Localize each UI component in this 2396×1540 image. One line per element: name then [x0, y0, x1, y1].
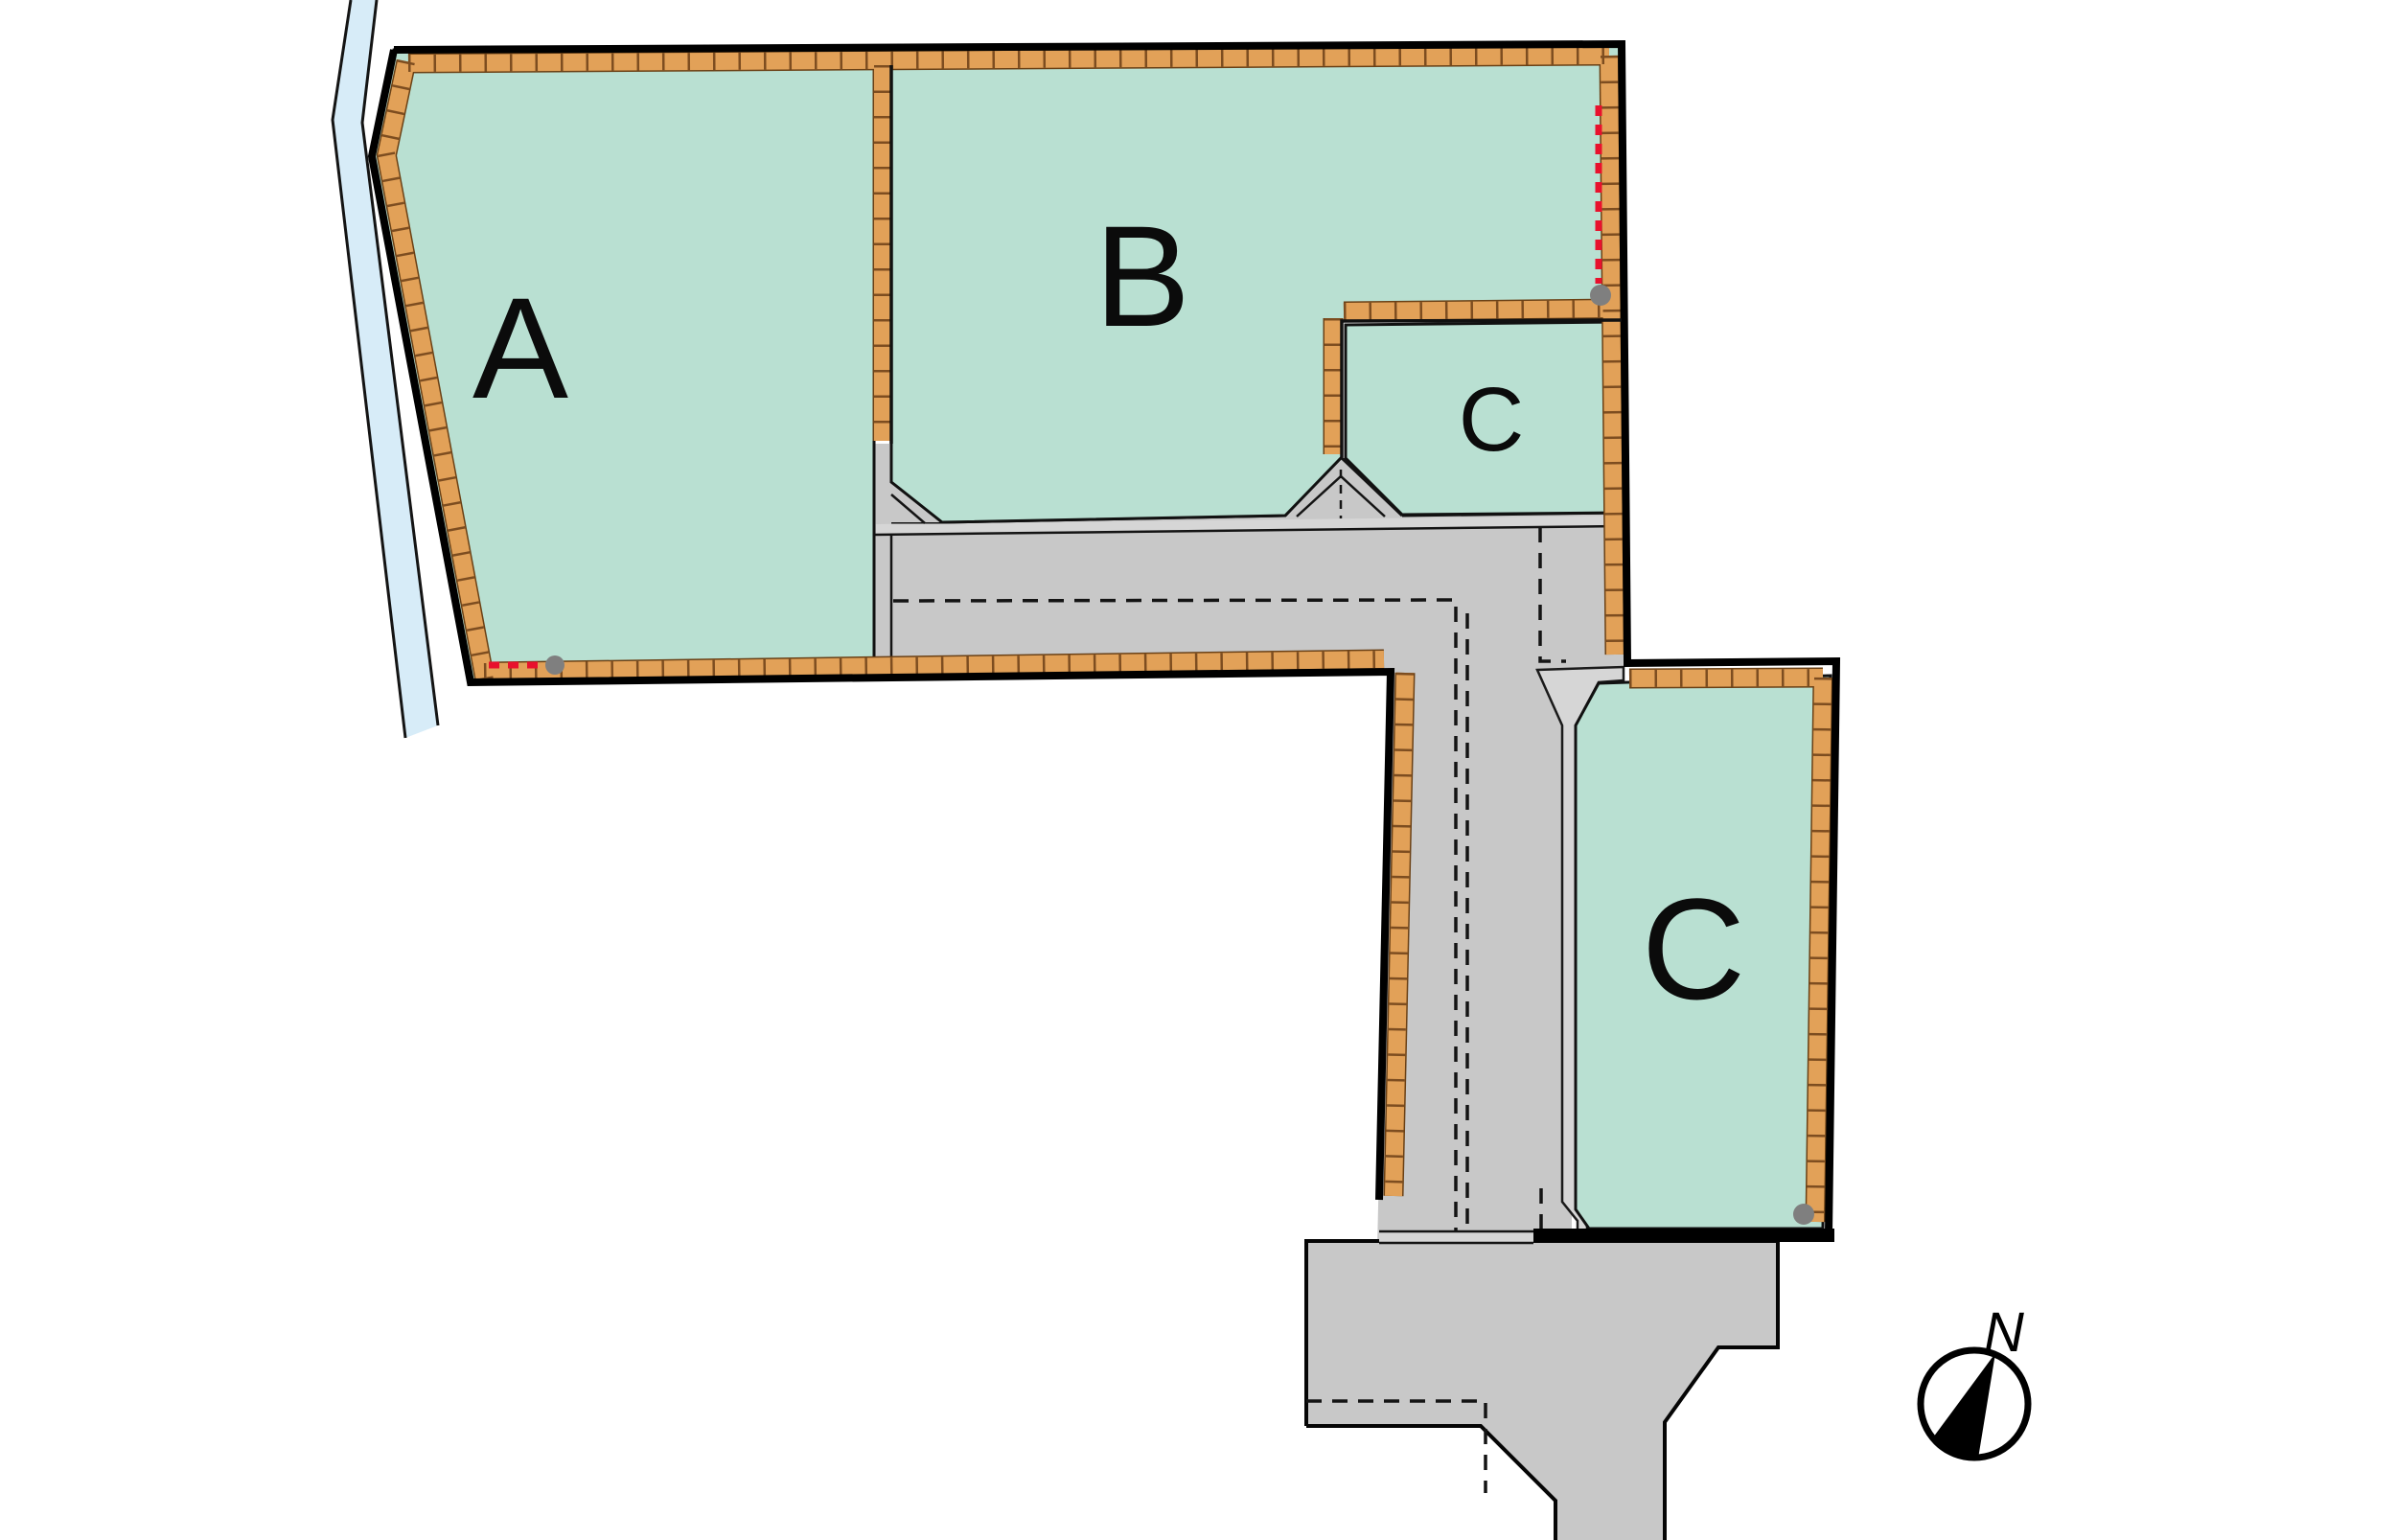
manhole-parcel-b [1590, 285, 1611, 306]
parcel-a [372, 47, 874, 682]
parcel-b-label: B [1094, 195, 1190, 356]
road-centerline-horizontal [893, 600, 1456, 1232]
manhole-parcel-a [545, 655, 564, 675]
parcel-a-label: A [472, 267, 568, 428]
site-plan: A B C C N [0, 0, 2396, 1540]
manhole-parcel-c [1793, 1204, 1814, 1225]
parcel-c-large-label: C [1642, 868, 1745, 1029]
north-label: N [1984, 1301, 2024, 1364]
north-compass: N [1921, 1301, 2028, 1459]
parcel-c-small-label: C [1459, 369, 1525, 471]
road-public [1306, 1241, 1778, 1540]
